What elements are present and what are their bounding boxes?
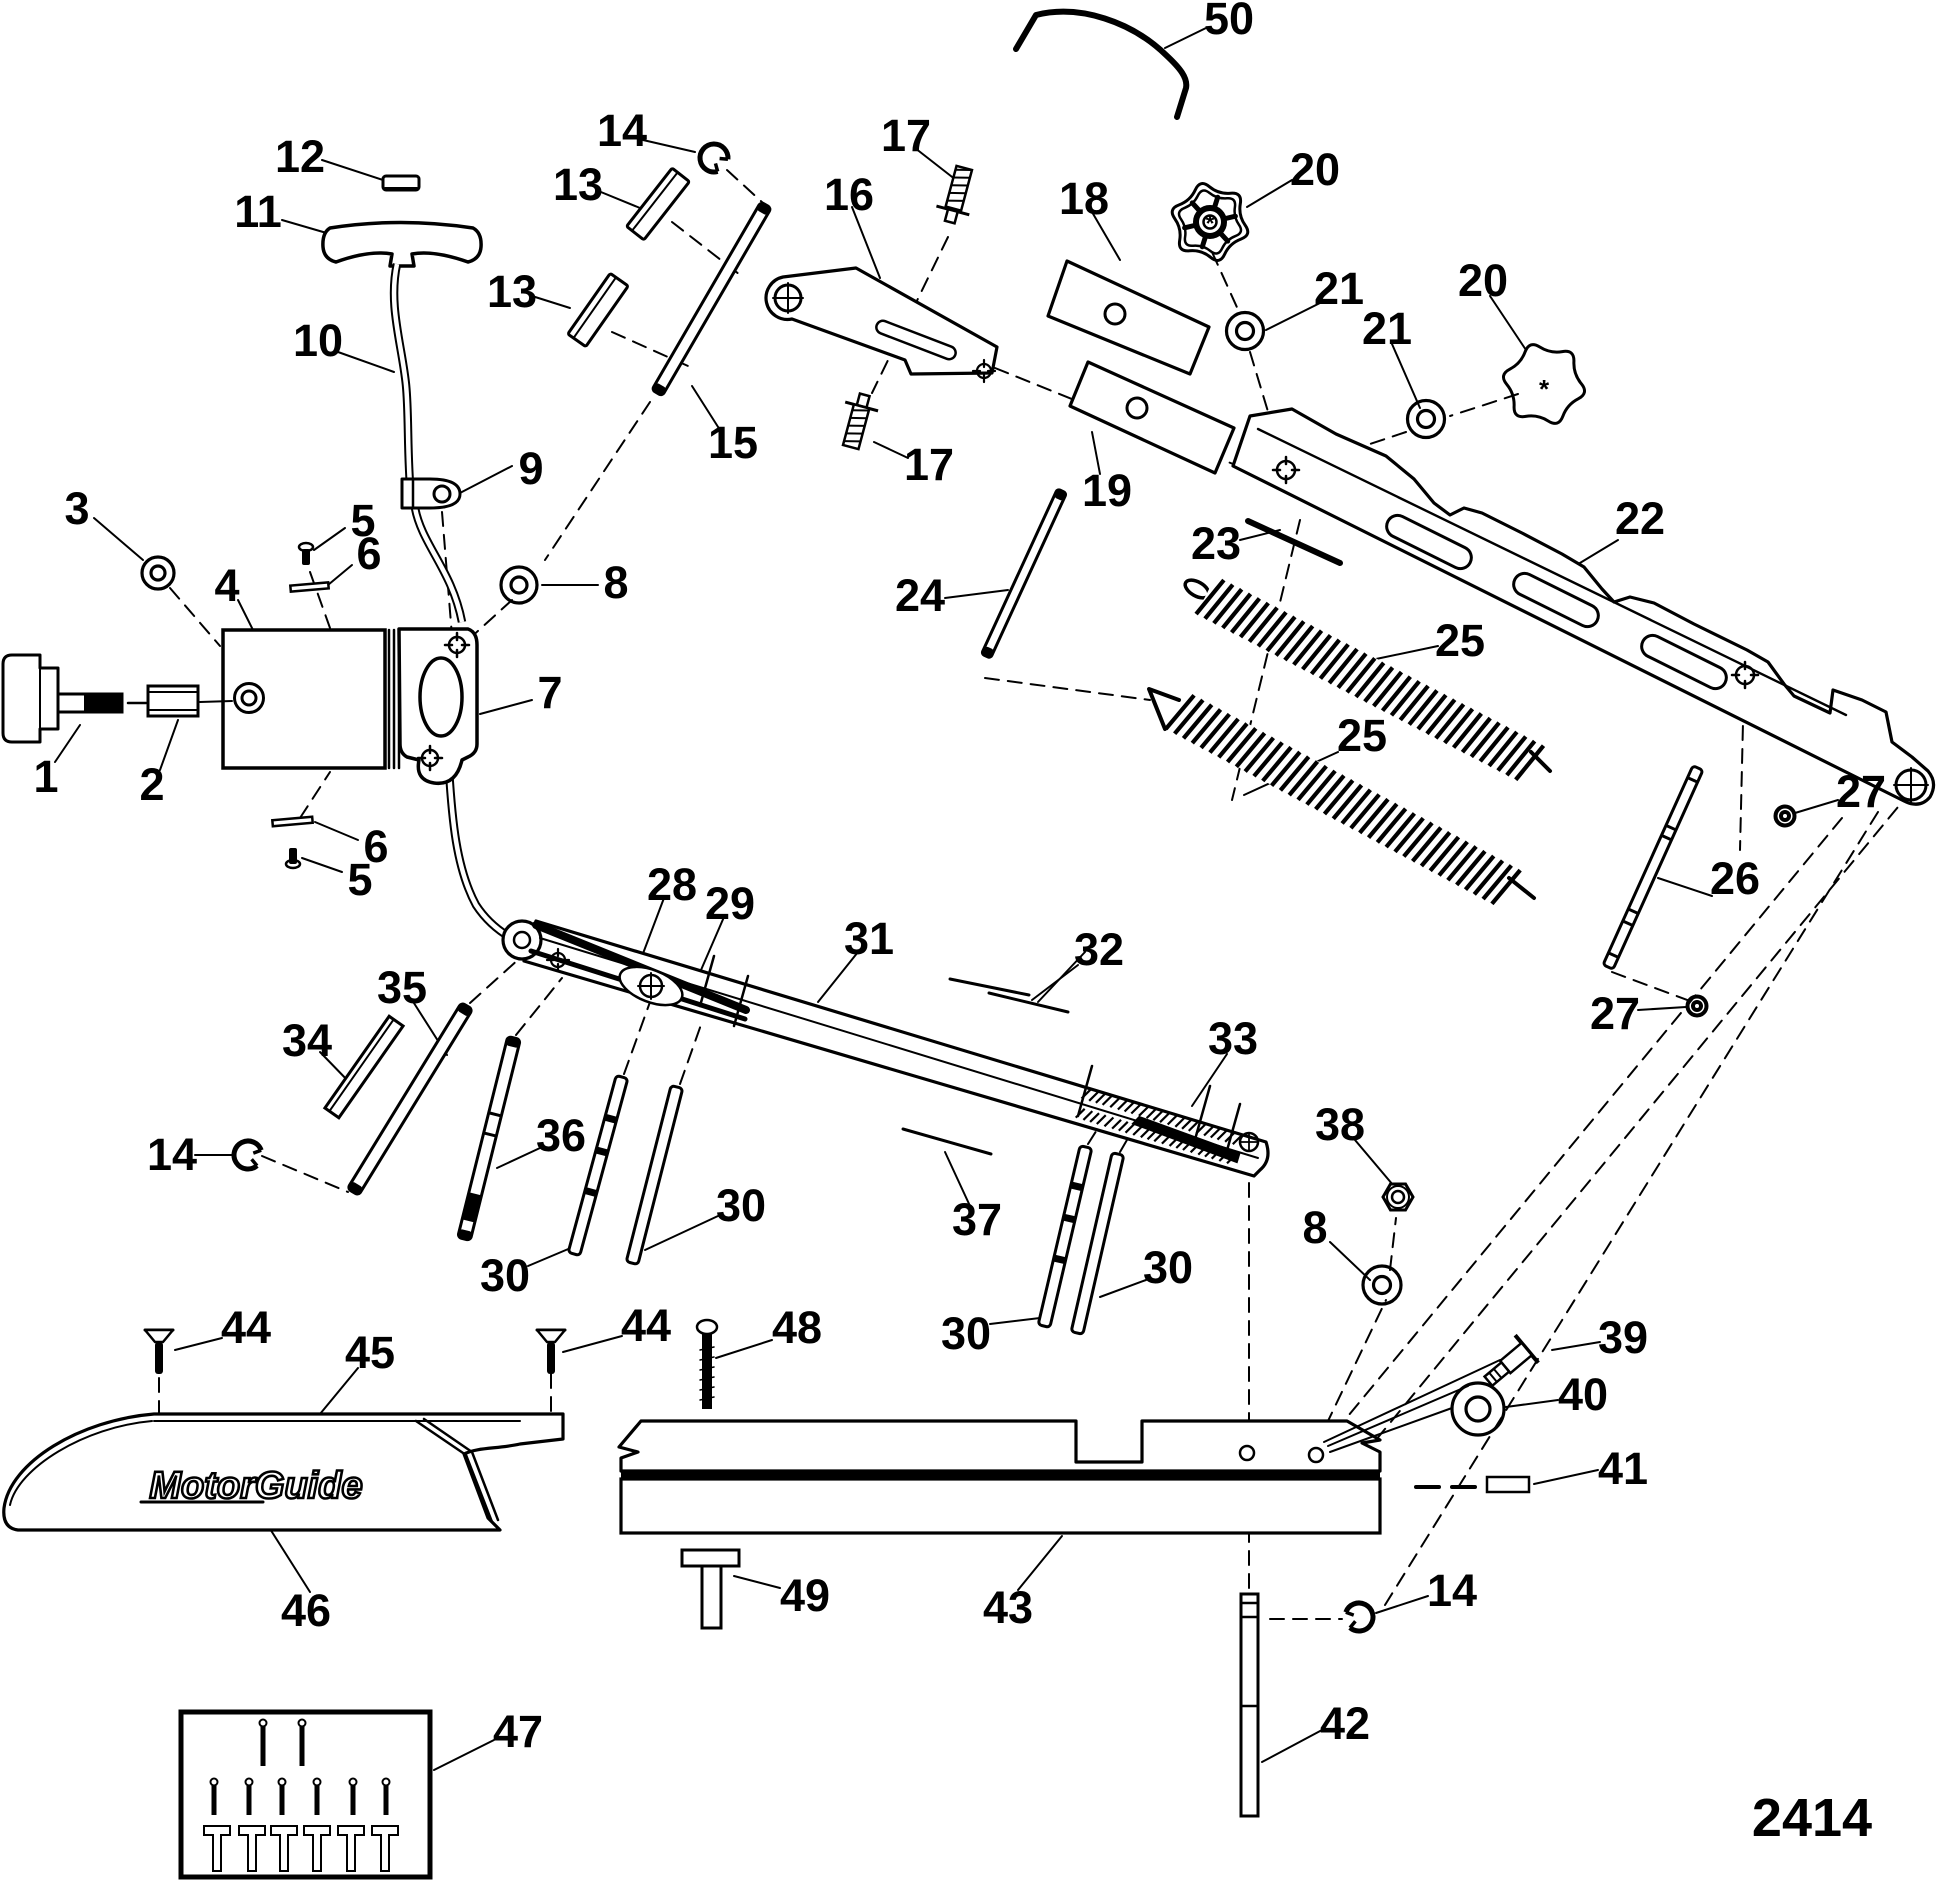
svg-text:40: 40 (1558, 1369, 1608, 1420)
svg-text:7: 7 (537, 667, 562, 718)
svg-text:44: 44 (221, 1302, 271, 1353)
svg-text:28: 28 (647, 859, 697, 910)
svg-text:43: 43 (983, 1582, 1033, 1633)
svg-text:27: 27 (1590, 988, 1640, 1039)
svg-text:37: 37 (952, 1194, 1002, 1245)
svg-text:33: 33 (1208, 1013, 1258, 1064)
svg-text:5: 5 (347, 854, 372, 905)
svg-text:1: 1 (33, 751, 58, 802)
svg-text:30: 30 (1143, 1242, 1193, 1293)
svg-text:38: 38 (1315, 1099, 1365, 1150)
svg-text:20: 20 (1458, 255, 1508, 306)
svg-text:4: 4 (214, 560, 239, 611)
svg-text:3: 3 (64, 483, 89, 534)
svg-text:24: 24 (895, 570, 945, 621)
svg-text:25: 25 (1337, 710, 1387, 761)
svg-text:47: 47 (493, 1706, 543, 1757)
svg-text:19: 19 (1082, 465, 1132, 516)
svg-text:30: 30 (716, 1180, 766, 1231)
svg-text:*: * (1206, 211, 1215, 236)
svg-text:12: 12 (275, 131, 325, 182)
svg-text:23: 23 (1191, 518, 1241, 569)
svg-text:34: 34 (282, 1015, 332, 1066)
svg-text:8: 8 (603, 557, 628, 608)
svg-text:49: 49 (780, 1570, 830, 1621)
svg-text:13: 13 (553, 159, 603, 210)
svg-text:35: 35 (377, 962, 427, 1013)
svg-text:11: 11 (234, 186, 282, 237)
svg-text:20: 20 (1290, 144, 1340, 195)
svg-text:25: 25 (1435, 615, 1485, 666)
svg-text:17: 17 (881, 110, 931, 161)
svg-text:41: 41 (1598, 1443, 1648, 1494)
svg-text:50: 50 (1204, 0, 1254, 44)
svg-text:46: 46 (281, 1585, 331, 1636)
svg-text:9: 9 (518, 443, 543, 494)
svg-text:30: 30 (480, 1250, 530, 1301)
svg-text:10: 10 (293, 315, 343, 366)
svg-text:2414: 2414 (1752, 1788, 1872, 1848)
svg-text:30: 30 (941, 1308, 991, 1359)
svg-text:32: 32 (1074, 924, 1124, 975)
svg-text:48: 48 (772, 1302, 822, 1353)
svg-text:17: 17 (904, 439, 954, 490)
svg-text:31: 31 (844, 913, 894, 964)
svg-text:16: 16 (824, 169, 874, 220)
svg-text:6: 6 (356, 528, 381, 579)
svg-text:*: * (1539, 374, 1550, 404)
svg-text:21: 21 (1314, 263, 1364, 314)
svg-text:29: 29 (705, 878, 755, 929)
svg-text:36: 36 (536, 1110, 586, 1161)
svg-text:14: 14 (1427, 1565, 1477, 1616)
svg-text:39: 39 (1598, 1312, 1648, 1363)
svg-text:27: 27 (1836, 766, 1886, 817)
svg-text:14: 14 (147, 1129, 197, 1180)
svg-text:42: 42 (1320, 1698, 1370, 1749)
svg-text:15: 15 (708, 417, 758, 468)
svg-text:14: 14 (597, 105, 647, 156)
svg-text:26: 26 (1710, 853, 1760, 904)
svg-text:8: 8 (1302, 1202, 1327, 1253)
svg-text:18: 18 (1059, 173, 1109, 224)
svg-text:21: 21 (1362, 303, 1412, 354)
svg-text:44: 44 (621, 1300, 671, 1351)
svg-text:13: 13 (487, 266, 537, 317)
svg-text:22: 22 (1615, 493, 1665, 544)
svg-text:45: 45 (345, 1327, 395, 1378)
svg-text:2: 2 (139, 759, 164, 810)
